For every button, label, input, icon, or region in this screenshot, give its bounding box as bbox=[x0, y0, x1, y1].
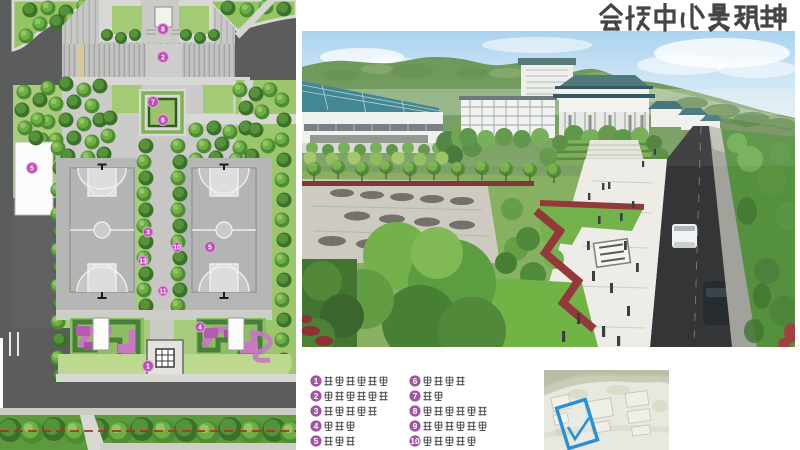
svg-text:2: 2 bbox=[161, 55, 165, 62]
svg-text:4: 4 bbox=[198, 325, 202, 332]
svg-text:3: 3 bbox=[146, 230, 150, 237]
svg-text:9: 9 bbox=[413, 421, 418, 431]
svg-text:4: 4 bbox=[314, 421, 319, 431]
svg-text:6: 6 bbox=[161, 118, 165, 125]
svg-text:1: 1 bbox=[146, 364, 150, 371]
svg-text:7: 7 bbox=[413, 391, 418, 401]
svg-text:10: 10 bbox=[173, 245, 181, 252]
svg-text:1: 1 bbox=[314, 376, 319, 386]
svg-text:8: 8 bbox=[413, 406, 418, 416]
svg-text:11: 11 bbox=[159, 289, 167, 296]
svg-text:3: 3 bbox=[314, 406, 319, 416]
svg-text:8: 8 bbox=[161, 27, 165, 34]
svg-text:13: 13 bbox=[139, 259, 147, 266]
svg-text:7: 7 bbox=[151, 100, 155, 107]
svg-text:5: 5 bbox=[208, 245, 212, 252]
svg-text:10: 10 bbox=[410, 436, 420, 446]
svg-text:6: 6 bbox=[413, 376, 418, 386]
svg-text:5: 5 bbox=[314, 436, 319, 446]
svg-text:2: 2 bbox=[314, 391, 319, 401]
svg-text:5: 5 bbox=[30, 166, 34, 173]
